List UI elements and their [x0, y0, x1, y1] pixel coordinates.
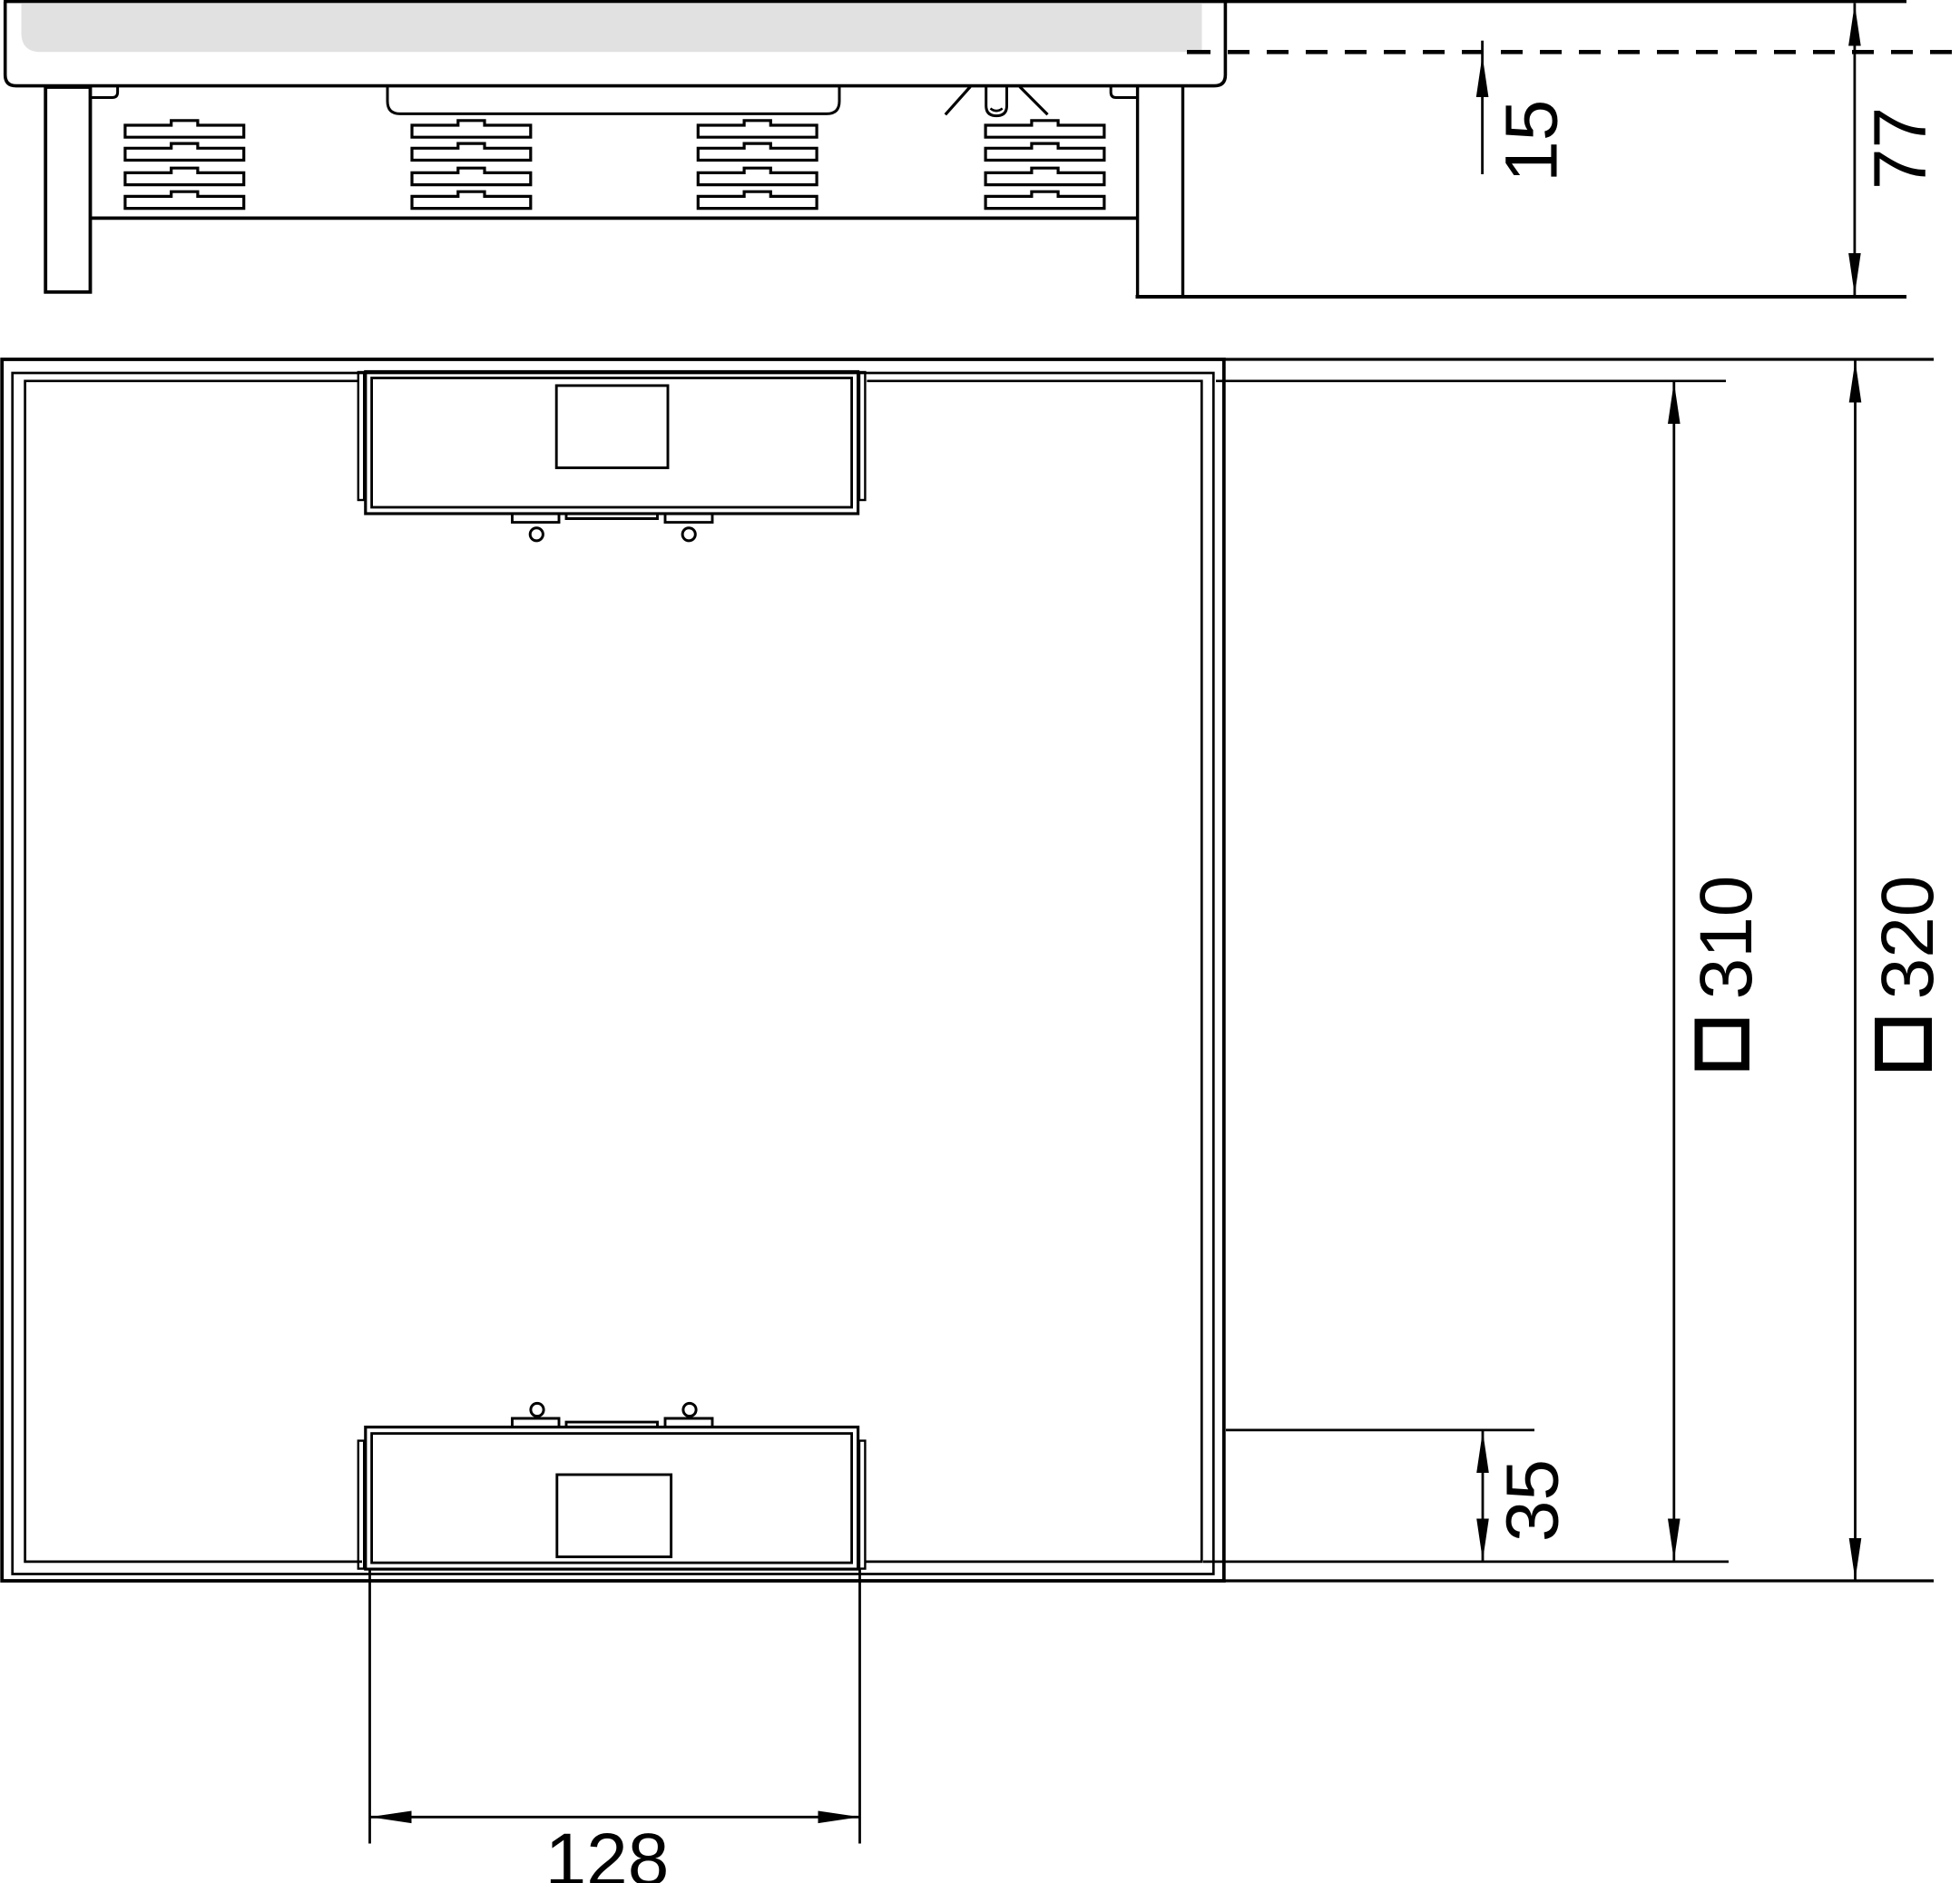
svg-text:320: 320	[1867, 876, 1949, 1000]
svg-text:310: 310	[1685, 876, 1768, 1000]
svg-text:15: 15	[1491, 100, 1573, 182]
svg-text:35: 35	[1492, 1459, 1574, 1542]
svg-text:128: 128	[545, 1819, 670, 1883]
svg-text:77: 77	[1859, 107, 1942, 190]
